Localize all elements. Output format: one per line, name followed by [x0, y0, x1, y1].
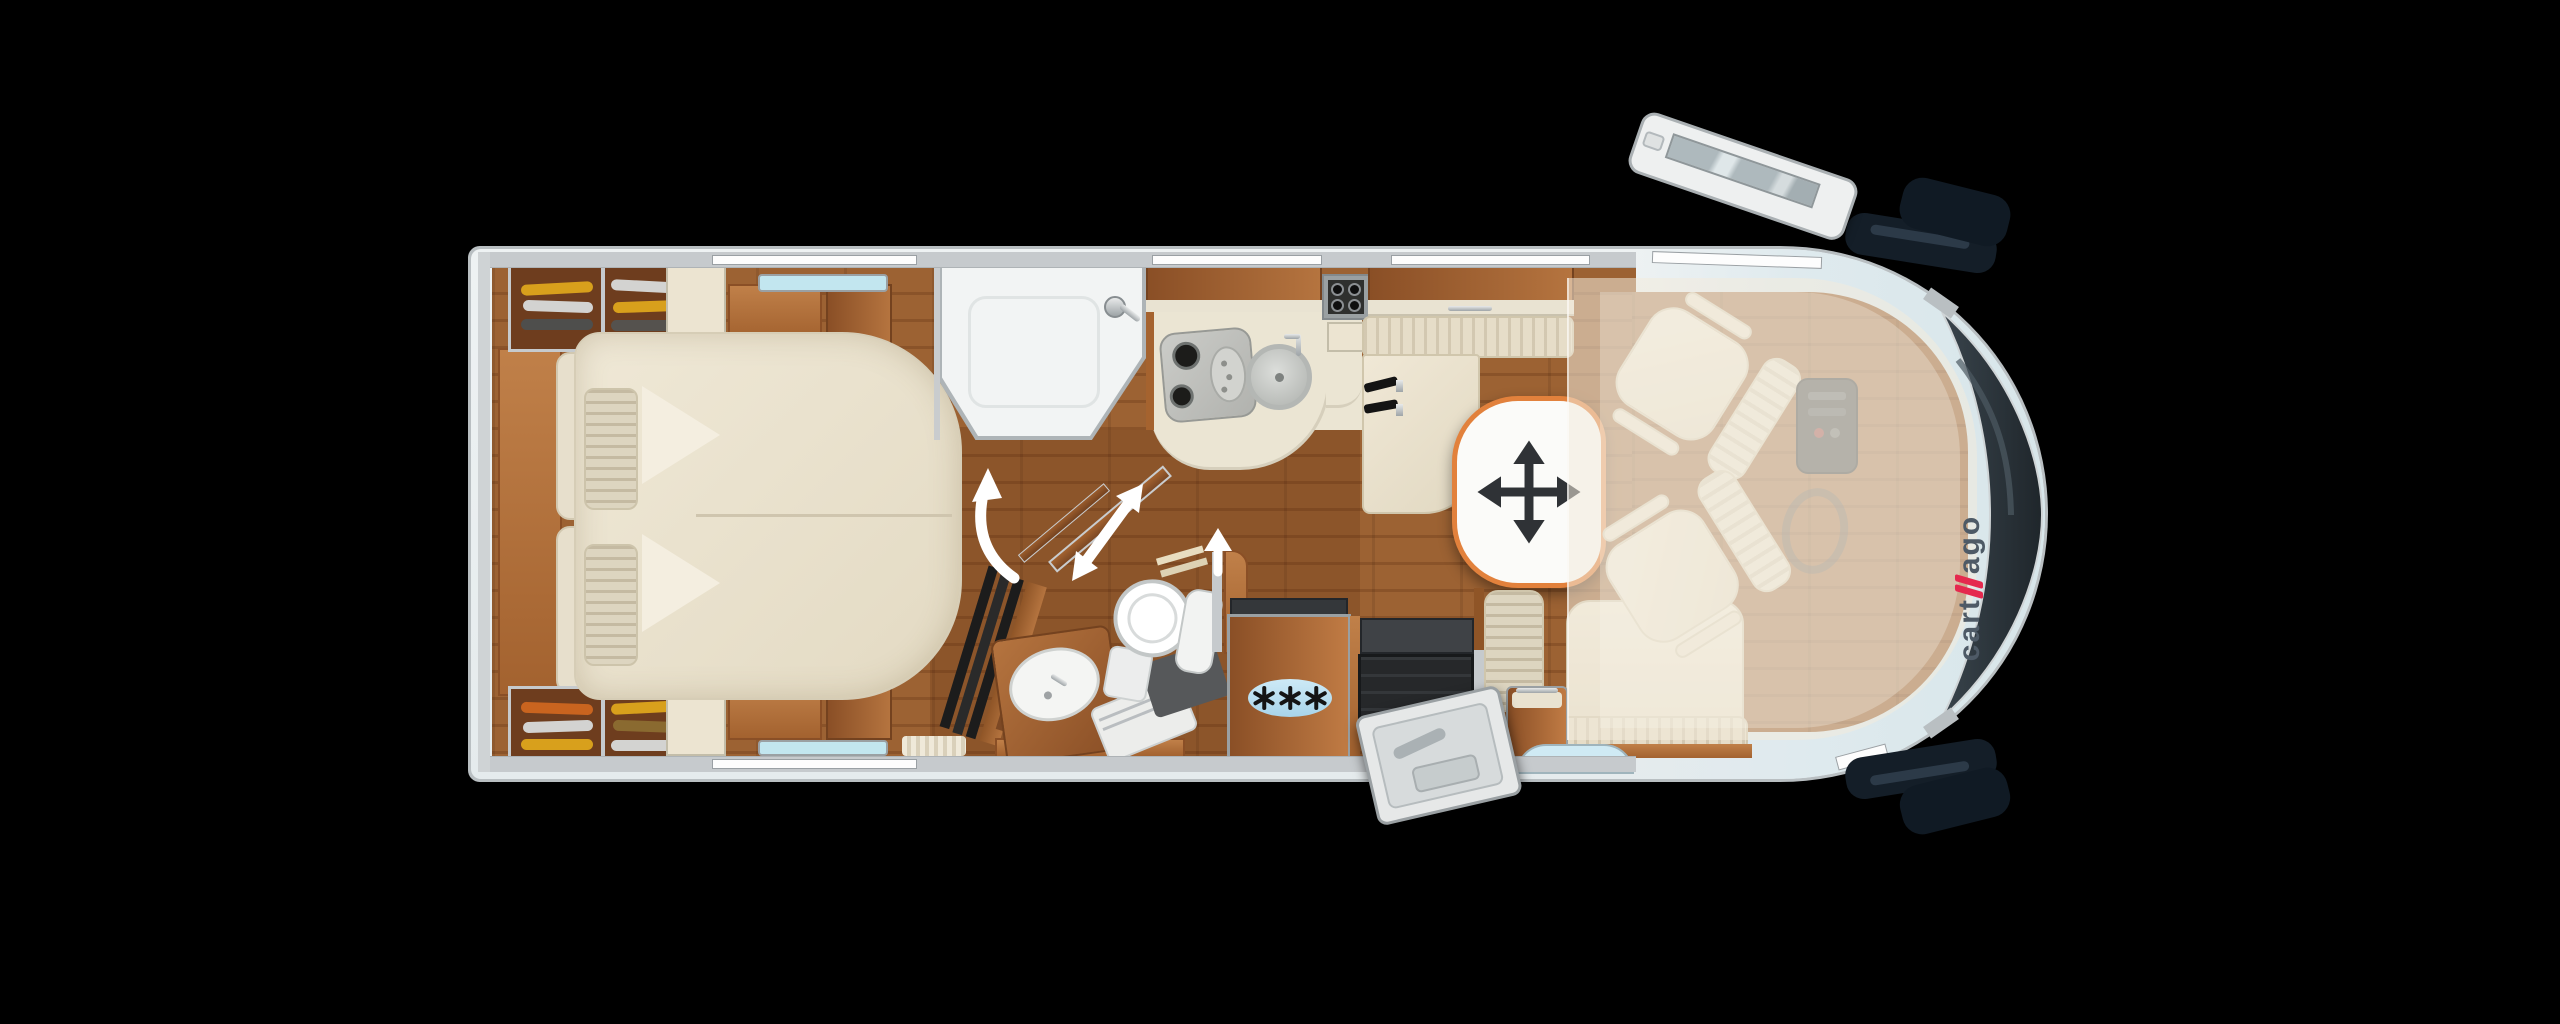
sink-drain: [1275, 373, 1284, 382]
window: [1152, 255, 1322, 265]
freezer-stars: [1248, 679, 1332, 717]
logo-red-emblem: [1955, 576, 1985, 596]
hanging-clothes: [521, 702, 593, 716]
window: [1391, 255, 1590, 265]
freezer-star-icon: [1253, 684, 1275, 712]
small-shelf: [1327, 322, 1365, 352]
hob: [1158, 326, 1257, 424]
window: [712, 759, 917, 769]
locker-handle: [1448, 306, 1492, 311]
hanging-clothes: [521, 319, 593, 330]
lounge-overhead-locker: [1368, 266, 1574, 302]
wall-rear: [478, 252, 490, 772]
kitchen-overhead-locker: [1146, 266, 1322, 302]
lounge-locker-fascia: [1368, 300, 1574, 316]
kitchen-faucet-spout: [1284, 334, 1300, 339]
bed-backrest-pad: [584, 388, 638, 510]
burner: [1171, 341, 1201, 371]
dinette-backrest: [1362, 316, 1574, 358]
rooflight: [758, 740, 888, 756]
rear-headboard-shelf: [498, 348, 562, 696]
floorplan-canvas: cart ago: [0, 0, 2560, 1024]
logo-text-end: ago: [1953, 515, 1987, 574]
burner: [1169, 383, 1195, 409]
logo-text-start: cart: [1953, 598, 1987, 661]
freezer-star-icon: [1305, 684, 1327, 712]
bed-center-seam: [696, 514, 952, 517]
brand-logo: cart ago: [1948, 428, 1992, 748]
window: [712, 255, 917, 265]
belt-buckle: [1396, 404, 1403, 416]
knob: [1348, 283, 1361, 296]
kitchen-counter-edge: [1146, 312, 1154, 430]
bed-backrest-pad: [584, 544, 638, 666]
curtain: [902, 736, 966, 756]
cabinet-handle: [1516, 688, 1558, 693]
kitchen-sink: [1246, 344, 1312, 410]
knob: [1348, 299, 1361, 312]
cabinet-top: [1512, 692, 1562, 708]
hanging-clothes: [521, 281, 593, 296]
belt-buckle: [1396, 380, 1403, 392]
hanging-clothes: [523, 720, 593, 733]
shower-tray: [968, 296, 1100, 408]
knob: [1331, 299, 1344, 312]
door-swing-arrows: [940, 430, 1270, 630]
entry-step-ledge: [1360, 618, 1474, 654]
knob: [1331, 283, 1344, 296]
freezer-star-icon: [1279, 684, 1301, 712]
hanging-clothes: [523, 300, 593, 313]
hob-control-panel: [1322, 274, 1370, 320]
rooflight: [758, 274, 888, 292]
wall-divider: [934, 262, 940, 440]
refrigerator: [1227, 614, 1351, 762]
bathroom-door-swing-arrow: [981, 500, 1014, 578]
swivel-wall-arrow: [1087, 504, 1128, 560]
hanging-clothes: [521, 739, 593, 750]
